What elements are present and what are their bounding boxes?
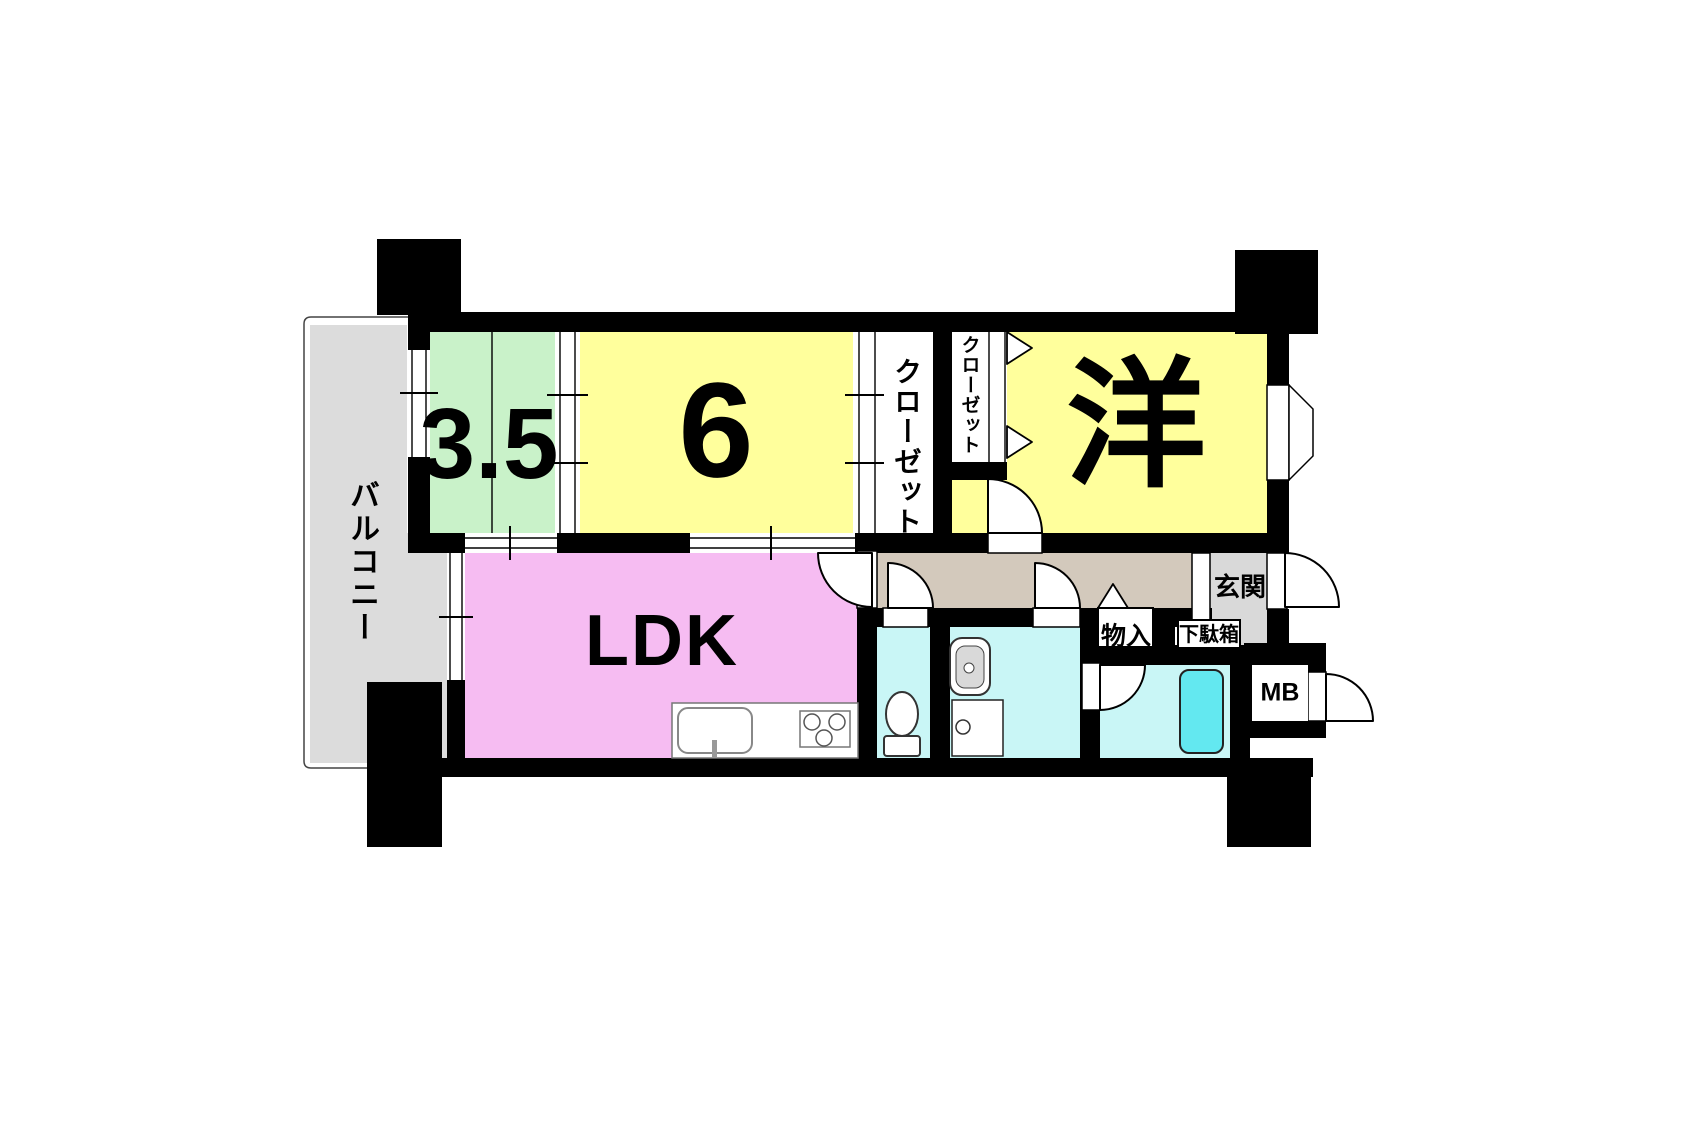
floor-plan-drawing <box>0 0 1701 1133</box>
wall-storage-shoebox <box>1153 608 1175 648</box>
room-3-5-label: 3.5 <box>419 394 558 494</box>
stove-burner-icon <box>804 714 820 730</box>
shoe-cabinet-label: 下駄箱 <box>1179 625 1239 645</box>
room-6-label: 6 <box>678 363 753 498</box>
wall-east-mid <box>1267 480 1289 553</box>
floor-plan: バルコニー 3.5 6 クローゼット クローゼット 洋 LDK 玄関 物入 下駄… <box>0 0 1701 1133</box>
wall-east-lower <box>1267 609 1289 647</box>
storage-label: 物入 <box>1101 625 1151 650</box>
entrance-step <box>1192 553 1210 623</box>
washbasin-drain-icon <box>964 663 974 673</box>
closet-1-label: クローゼット <box>892 357 920 537</box>
bay-window <box>1289 385 1313 480</box>
front-door-swing <box>1285 553 1339 607</box>
stove-burner-icon <box>829 714 845 730</box>
bay-window-base <box>1267 385 1289 480</box>
wall-top <box>415 312 1270 332</box>
wall-ldk-west-lower <box>447 680 465 758</box>
western-room-label: 洋 <box>1066 356 1206 496</box>
closet-2-label: クローゼット <box>960 335 979 455</box>
toilet-door-leaf <box>883 608 928 627</box>
wall-under-closet2 <box>950 462 1007 480</box>
wall-east-upper <box>1267 332 1289 385</box>
pillar-top-left <box>377 239 461 315</box>
partition-3-5-and-6 <box>555 332 580 533</box>
kitchen-faucet-icon <box>712 740 717 758</box>
meter-box-label: MB <box>1261 681 1300 706</box>
balcony-label: バルコニー <box>346 480 376 645</box>
bathtub <box>1180 670 1223 753</box>
meter-box-door-leaf <box>1308 672 1326 721</box>
pillar-bottom-left <box>367 682 442 847</box>
washing-machine-pan <box>952 700 1003 756</box>
bath-door-leaf <box>1082 663 1100 710</box>
western-room-door-leaf <box>988 533 1042 553</box>
toilet-bowl-icon <box>886 692 918 736</box>
stove-burner-icon <box>816 730 832 746</box>
wall-toilet-washroom <box>930 627 950 758</box>
washroom-door-leaf <box>1033 608 1080 627</box>
meter-box-door-swing <box>1326 674 1373 721</box>
toilet-tank-icon <box>884 736 920 756</box>
window-6-ldk <box>690 533 855 553</box>
entrance-label: 玄関 <box>1214 574 1266 600</box>
wall-between-closets <box>933 332 952 553</box>
wall-bottom <box>442 758 1313 777</box>
ldk-label: LDK <box>585 605 739 677</box>
